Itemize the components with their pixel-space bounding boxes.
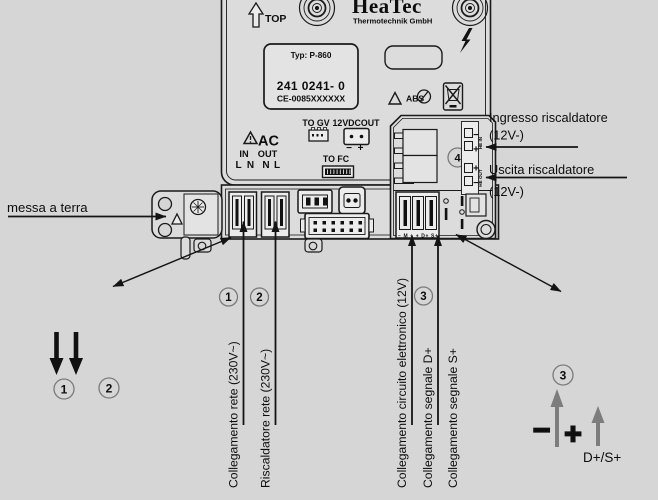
terminal-slot (417, 200, 421, 226)
gv-pin (312, 134, 314, 137)
minus-symbol: − (533, 414, 551, 447)
terminal-letter-n: N (247, 160, 254, 171)
to-fc-label: TO FC (323, 154, 350, 164)
label-electronic: Collegamento circuito elettronico (12V) (395, 278, 409, 488)
ground-label: messa a terra (7, 200, 88, 215)
strip-in-label: HE IN (478, 136, 483, 149)
callout-number-3-bottom: 3 (560, 369, 567, 383)
terminal-slot (268, 199, 271, 226)
strip-terminal (465, 177, 473, 186)
callout-number-4: 4 (454, 153, 461, 165)
weee-bar (450, 105, 457, 108)
warning-dot (250, 141, 252, 143)
strip-terminal (465, 164, 473, 173)
label-heater-mains: Riscaldatore rete (230V~) (259, 349, 273, 488)
plus-symbol: + (564, 418, 582, 451)
terminal-letter-l: L (235, 160, 241, 171)
ce-number: CE-0085XXXXXX (277, 94, 346, 104)
callout-number-3: 3 (420, 291, 426, 303)
boss-center (315, 6, 319, 10)
vdc-pin (350, 135, 354, 139)
twelve-pin-inner (309, 218, 365, 235)
signal-pin (445, 208, 448, 220)
callout-number-1-bottom: 1 (61, 383, 68, 397)
signal-pin (461, 196, 464, 206)
blank-label-plate (385, 46, 442, 69)
ac-out-label: OUT (258, 149, 278, 159)
bracket-hole (159, 198, 172, 211)
to-gv-label: TO GV (302, 118, 329, 128)
callout-number-2: 2 (256, 292, 262, 304)
pin (306, 198, 311, 206)
vdcout-label: 12VDCOUT (333, 118, 381, 128)
flange-boss (477, 221, 495, 239)
gv-pin (321, 134, 323, 137)
strip-terminal (465, 129, 473, 138)
heater-module: 4 − + + − HE IN HE OUT − M + + D+ S+ (391, 116, 496, 240)
strip-terminal (465, 142, 473, 151)
callout-number-1: 1 (225, 292, 232, 304)
wiring-diagram: TOP HeaTec Thermotechnik GmbH Typ: P-860… (0, 0, 658, 500)
terminal-letter-l: L (274, 160, 280, 171)
heater-out-label: Uscita riscaldatore (489, 162, 594, 177)
type-label: Typ: P-860 (291, 51, 332, 60)
label-signal-splus: Collegamento segnale S+ (446, 348, 460, 488)
brand-subtitle: Thermotechnik GmbH (353, 17, 432, 26)
terminal-slot (280, 199, 283, 226)
terminal-row-label: − M + + D+ S+ (398, 234, 438, 240)
terminal-letter-n: N (262, 160, 269, 171)
gv-notch (312, 128, 315, 131)
ac-label: AC (258, 134, 279, 150)
top-label: TOP (265, 13, 286, 25)
boss-center (468, 6, 472, 10)
heater-out-voltage: (12V-) (489, 184, 524, 199)
strip-out-label: HE OUT (478, 169, 483, 187)
ac-in-label: IN (239, 149, 249, 159)
heater-in-label: Ingresso riscaldatore (489, 110, 608, 125)
pin (346, 198, 350, 202)
relay-block (403, 130, 437, 156)
wiring-diagram-page: TOP HeaTec Thermotechnik GmbH Typ: P-860… (0, 0, 658, 500)
gv-pin (317, 134, 319, 137)
pin (353, 198, 357, 202)
screw-icon (191, 200, 206, 215)
connector-tab (369, 219, 374, 232)
relay-block (403, 156, 437, 183)
fc-connector-icon (323, 166, 354, 178)
bracket-hole (159, 224, 172, 237)
gv-connector-icon (309, 128, 328, 142)
connector-tab (301, 219, 306, 232)
part-number: 241 0241- 0 (277, 79, 345, 93)
heater-in-voltage: (12V-) (489, 128, 524, 143)
gv-notch (318, 128, 321, 131)
terminal-slot (404, 200, 408, 226)
brand-logo: HeaTec (352, 0, 422, 18)
terminal-slot (236, 199, 239, 226)
label-mains: Collegamento rete (230V~) (227, 341, 241, 488)
vdc-plus: + (358, 143, 364, 154)
vdc-pin (360, 135, 364, 139)
terminal-slot (248, 199, 251, 226)
label-signal-dplus: Collegamento segnale D+ (421, 347, 435, 488)
gv-notch (324, 128, 327, 131)
signal-pin (461, 219, 464, 229)
pin (323, 198, 328, 206)
pin (315, 198, 320, 206)
small-relay (466, 194, 486, 216)
vdc-minus: − (346, 143, 352, 154)
callout-number-2-bottom: 2 (106, 382, 113, 396)
tab-hole (309, 242, 317, 250)
signal-dplus-splus-label: D+/S+ (583, 450, 621, 465)
terminal-slot (430, 200, 434, 226)
